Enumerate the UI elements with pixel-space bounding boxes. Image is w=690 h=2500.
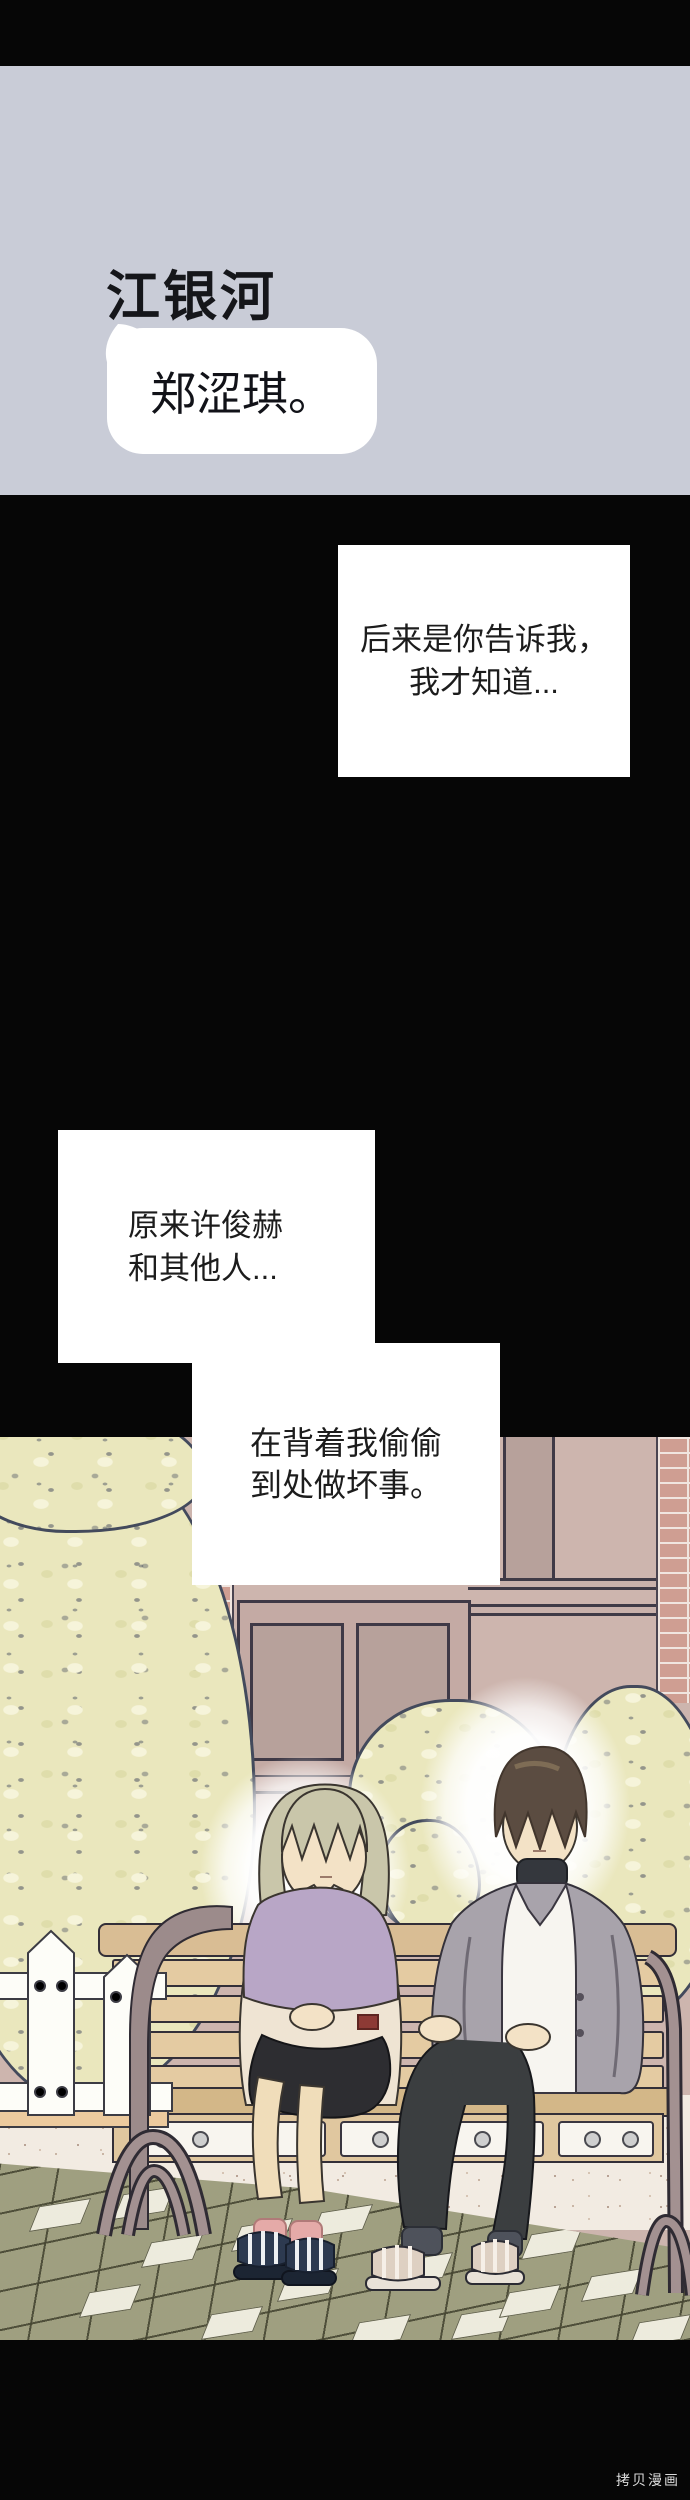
girl-hoodie-tag xyxy=(358,2015,378,2029)
boy-button xyxy=(576,1993,584,2001)
chat-contact-name: 江银河 xyxy=(106,252,277,331)
caption-line: 在背着我偷偷 xyxy=(192,1422,500,1464)
chat-panel: 江银河 郑涩琪。 xyxy=(0,66,690,495)
caption-box-1: 后来是你告诉我， 我才知道... xyxy=(338,545,630,777)
girl-hands xyxy=(290,2004,334,2030)
boy-character xyxy=(366,1747,643,2290)
caption-line: 到处做坏事。 xyxy=(192,1464,500,1506)
girl-sandals xyxy=(234,2231,336,2285)
caption-line: 后来是你告诉我， xyxy=(338,618,630,661)
watermark: 拷贝漫画 xyxy=(616,2470,680,2490)
speech-bubble: 郑涩琪。 xyxy=(107,328,377,454)
girl-hoodie-upper xyxy=(244,1888,398,2011)
boy-hand-left xyxy=(419,2016,461,2042)
girl-leg-left xyxy=(253,2077,284,2199)
comic-page: 江银河 郑涩琪。 后来是你告诉我， 我才知道... 原来许俊赫 和其他人... … xyxy=(0,0,690,2500)
girl-character xyxy=(234,1785,401,2286)
speech-bubble-text: 郑涩琪。 xyxy=(150,358,334,424)
caption-line: 原来许俊赫 xyxy=(58,1204,375,1247)
caption-line: 和其他人... xyxy=(58,1247,375,1290)
caption-box-3: 在背着我偷偷 到处做坏事。 xyxy=(192,1343,500,1585)
girl-leg-right xyxy=(297,2085,324,2203)
caption-box-2: 原来许俊赫 和其他人... xyxy=(58,1130,375,1363)
boy-hand-right xyxy=(506,2024,550,2050)
boy-button xyxy=(576,2029,584,2037)
caption-line: 我才知道... xyxy=(338,661,630,704)
boy-sandals xyxy=(366,2239,524,2290)
